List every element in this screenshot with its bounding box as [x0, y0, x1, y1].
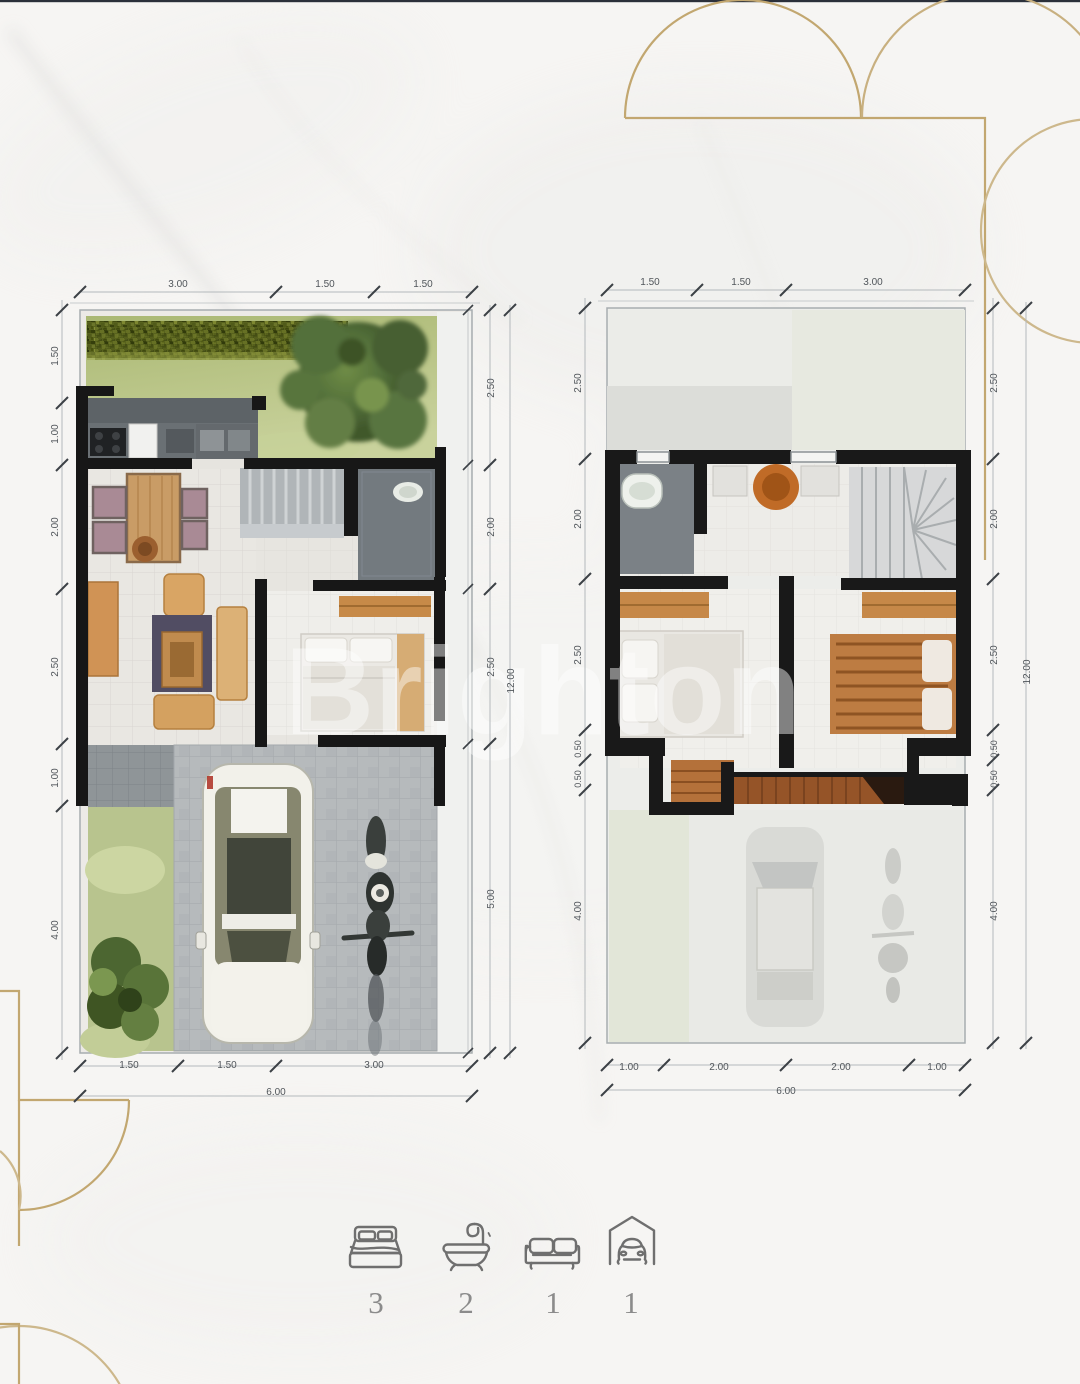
- svg-text:2.50: 2.50: [50, 657, 61, 677]
- svg-text:5.00: 5.00: [486, 889, 497, 909]
- svg-text:2.50: 2.50: [486, 657, 497, 677]
- svg-text:2.50: 2.50: [989, 373, 1000, 393]
- svg-text:2.50: 2.50: [989, 645, 1000, 665]
- svg-text:3.00: 3.00: [168, 279, 188, 290]
- svg-text:3.00: 3.00: [364, 1060, 384, 1071]
- svg-text:1.50: 1.50: [217, 1060, 237, 1071]
- svg-text:2.00: 2.00: [50, 517, 61, 537]
- svg-text:12.00: 12.00: [506, 668, 517, 693]
- svg-text:1.50: 1.50: [640, 277, 660, 288]
- svg-text:0.50: 0.50: [573, 770, 583, 788]
- svg-text:2.00: 2.00: [573, 509, 584, 529]
- svg-text:1.50: 1.50: [315, 279, 335, 290]
- svg-text:4.00: 4.00: [573, 901, 584, 921]
- svg-text:12.00: 12.00: [1022, 659, 1033, 684]
- svg-text:1.50: 1.50: [731, 277, 751, 288]
- svg-text:0.50: 0.50: [573, 740, 583, 758]
- svg-text:1.00: 1.00: [50, 424, 61, 444]
- svg-text:4.00: 4.00: [50, 920, 61, 940]
- svg-text:1.50: 1.50: [50, 346, 61, 366]
- svg-text:6.00: 6.00: [776, 1086, 796, 1097]
- svg-text:2: 2: [458, 1285, 474, 1320]
- svg-text:2.00: 2.00: [709, 1062, 729, 1073]
- svg-text:0.50: 0.50: [989, 770, 999, 788]
- svg-text:0.50: 0.50: [989, 740, 999, 758]
- svg-text:1.00: 1.00: [50, 768, 61, 788]
- svg-text:2.00: 2.00: [486, 517, 497, 537]
- svg-text:1.00: 1.00: [619, 1062, 639, 1073]
- svg-text:1.50: 1.50: [413, 279, 433, 290]
- svg-text:3: 3: [368, 1285, 384, 1320]
- svg-text:1: 1: [623, 1285, 639, 1320]
- svg-text:1.00: 1.00: [927, 1062, 947, 1073]
- svg-text:2.50: 2.50: [486, 378, 497, 398]
- svg-text:3.00: 3.00: [863, 277, 883, 288]
- svg-text:2.00: 2.00: [989, 509, 1000, 529]
- svg-text:2.50: 2.50: [573, 373, 584, 393]
- svg-text:2.00: 2.00: [831, 1062, 851, 1073]
- svg-text:6.00: 6.00: [266, 1087, 286, 1098]
- svg-text:1: 1: [545, 1285, 561, 1320]
- svg-text:Brighton: Brighton: [285, 623, 802, 761]
- svg-text:4.00: 4.00: [989, 901, 1000, 921]
- svg-text:1.50: 1.50: [119, 1060, 139, 1071]
- svg-text:2.50: 2.50: [573, 645, 584, 665]
